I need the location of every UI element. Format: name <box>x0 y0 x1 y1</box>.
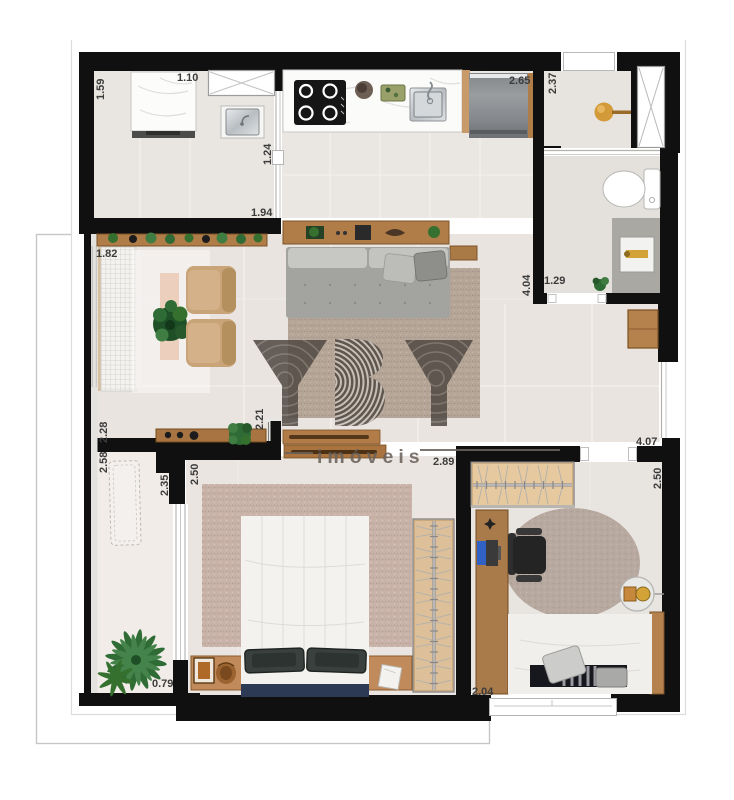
svg-text:2.04: 2.04 <box>472 686 494 698</box>
svg-text:1.29: 1.29 <box>544 275 565 287</box>
svg-text:0.79: 0.79 <box>152 678 173 690</box>
svg-text:1.59: 1.59 <box>95 79 107 100</box>
svg-text:2.37: 2.37 <box>547 73 559 94</box>
svg-text:2.21: 2.21 <box>254 409 266 430</box>
svg-text:2.89: 2.89 <box>433 456 454 468</box>
svg-text:1.10: 1.10 <box>177 72 198 84</box>
svg-text:1.24: 1.24 <box>262 143 274 165</box>
svg-text:1.94: 1.94 <box>251 207 273 219</box>
svg-text:2.58: 2.58 <box>98 452 110 473</box>
svg-text:4.07: 4.07 <box>636 436 657 448</box>
svg-text:2.50: 2.50 <box>189 464 201 485</box>
svg-text:2.65: 2.65 <box>509 75 530 87</box>
svg-text:imóveis: imóveis <box>317 446 425 468</box>
svg-text:2.50: 2.50 <box>652 468 664 489</box>
svg-text:2.35: 2.35 <box>159 475 171 496</box>
svg-text:4.04: 4.04 <box>521 274 533 296</box>
svg-text:1.82: 1.82 <box>96 248 117 260</box>
svg-text:2.28: 2.28 <box>98 422 110 443</box>
